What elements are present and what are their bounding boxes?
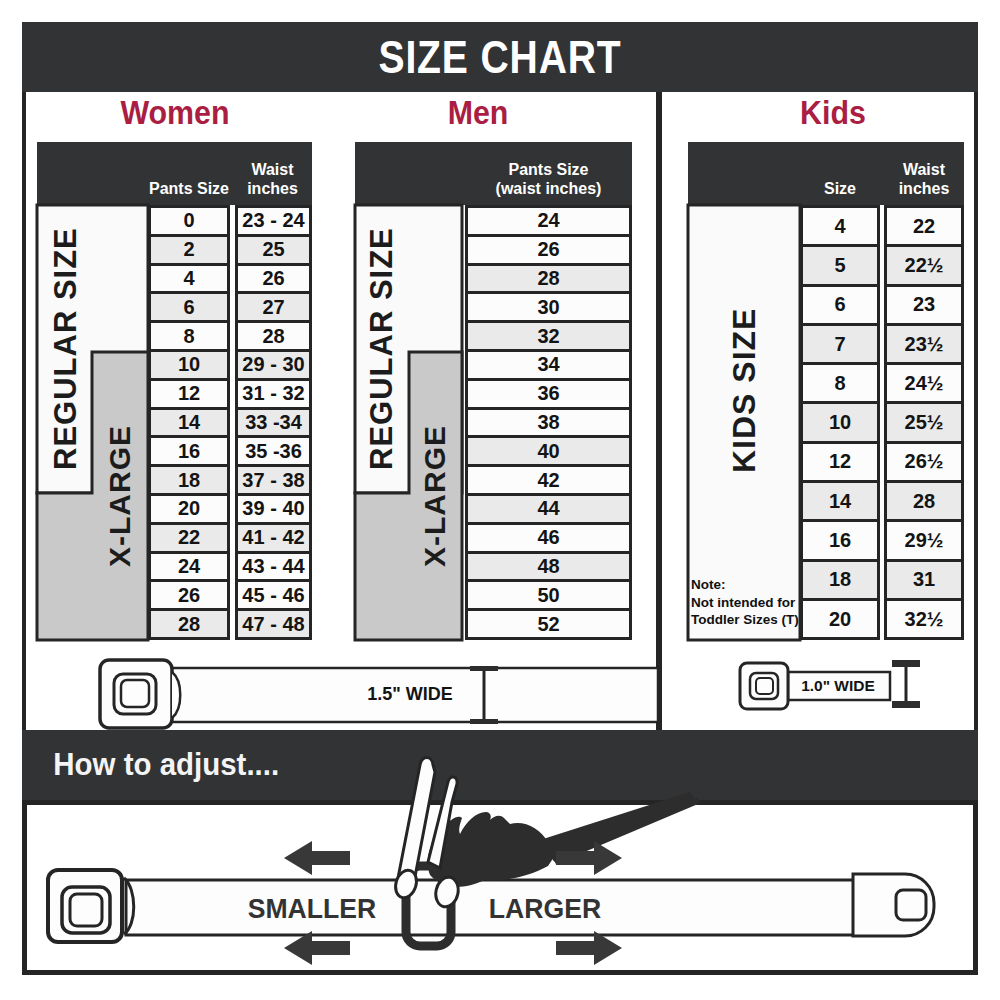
table-row: 48 <box>465 551 632 583</box>
table-row: 522½ <box>800 244 964 286</box>
table-cell-waist: 45 - 46 <box>235 579 312 611</box>
table-cell-size: 24 <box>148 551 230 583</box>
table-row: 28 <box>465 263 632 295</box>
table-row: 828 <box>148 320 312 352</box>
table-row: 1831 <box>800 559 964 601</box>
table-cell-waist: 23½ <box>884 323 964 365</box>
table-row: 2241 - 42 <box>148 522 312 554</box>
table-cell-size: 22 <box>148 522 230 554</box>
kids-note: Note: Not intended for Toddler Sizes (T) <box>691 576 803 629</box>
how-to-adjust-heading: How to adjust.... <box>22 747 279 783</box>
table-row: 1428 <box>800 480 964 522</box>
men-table-header: Pants Size (waist inches) <box>355 142 632 205</box>
size-chart-banner: SIZE CHART <box>22 22 978 92</box>
table-row: 32 <box>465 320 632 352</box>
table-row: 225 <box>148 234 312 266</box>
table-cell-size: 42 <box>465 464 632 496</box>
adult-belt-width-label: 1.5" WIDE <box>340 684 480 705</box>
table-cell-waist: 28 <box>884 480 964 522</box>
table-cell-waist: 31 - 32 <box>235 378 312 410</box>
table-cell-size: 28 <box>465 263 632 295</box>
table-cell-size: 52 <box>465 608 632 640</box>
size-chart-graphic: SIZE CHART Women Men Kids <box>0 0 1000 1000</box>
kids-note-line: Toddler Sizes (T) <box>691 611 803 629</box>
table-cell-waist: 41 - 42 <box>235 522 312 554</box>
table-row: 36 <box>465 378 632 410</box>
page-title: SIZE CHART <box>378 30 621 84</box>
table-cell-size: 26 <box>465 234 632 266</box>
kids-size-column-header: Size <box>800 180 880 199</box>
women-waist-column-header: Waist inches <box>234 161 311 199</box>
table-cell-size: 8 <box>800 362 880 404</box>
table-row: 38 <box>465 407 632 439</box>
table-cell-size: 48 <box>465 551 632 583</box>
table-row: 2645 - 46 <box>148 579 312 611</box>
table-cell-size: 5 <box>800 244 880 286</box>
men-regular-size-label: REGULAR SIZE <box>355 205 409 493</box>
table-cell-size: 32 <box>465 320 632 352</box>
table-cell-waist: 29 - 30 <box>235 349 312 381</box>
table-cell-waist: 23 <box>884 284 964 326</box>
table-cell-size: 28 <box>148 608 230 640</box>
table-cell-waist: 31 <box>884 559 964 601</box>
table-cell-waist: 22½ <box>884 244 964 286</box>
table-cell-size: 0 <box>148 205 230 237</box>
table-cell-size: 4 <box>800 205 880 247</box>
table-cell-size: 36 <box>465 378 632 410</box>
table-row: 426 <box>148 263 312 295</box>
table-cell-size: 16 <box>148 435 230 467</box>
table-cell-waist: 35 -36 <box>235 435 312 467</box>
table-row: 627 <box>148 291 312 323</box>
table-cell-size: 44 <box>465 493 632 525</box>
table-cell-size: 46 <box>465 522 632 554</box>
kids-note-line: Not intended for <box>691 594 803 612</box>
table-row: 623 <box>800 284 964 326</box>
table-row: 52 <box>465 608 632 640</box>
table-row: 824½ <box>800 362 964 404</box>
table-cell-size: 24 <box>465 205 632 237</box>
table-cell-size: 12 <box>148 378 230 410</box>
table-cell-waist: 37 - 38 <box>235 464 312 496</box>
table-row: 50 <box>465 579 632 611</box>
table-cell-size: 50 <box>465 579 632 611</box>
table-cell-size: 14 <box>800 480 880 522</box>
table-row: 2847 - 48 <box>148 608 312 640</box>
larger-label: LARGER <box>469 893 621 925</box>
table-row: 422 <box>800 205 964 247</box>
table-row: 44 <box>465 493 632 525</box>
kids-table-header: Size Waist inches <box>688 142 964 205</box>
table-cell-waist: 43 - 44 <box>235 551 312 583</box>
women-size-column-header: Pants Size <box>148 180 230 199</box>
table-row: 42 <box>465 464 632 496</box>
adjust-illustration-panel <box>22 800 978 975</box>
table-row: 2443 - 44 <box>148 551 312 583</box>
table-cell-size: 8 <box>148 320 230 352</box>
table-row: 40 <box>465 435 632 467</box>
kids-belt-width-label: 1.0" WIDE <box>798 677 878 695</box>
table-cell-size: 18 <box>148 464 230 496</box>
table-cell-size: 18 <box>800 559 880 601</box>
table-row: 26 <box>465 234 632 266</box>
table-cell-size: 38 <box>465 407 632 439</box>
table-row: 34 <box>465 349 632 381</box>
women-table-header: Pants Size Waist inches <box>37 142 312 205</box>
table-row: 46 <box>465 522 632 554</box>
women-heading: Women <box>83 94 267 132</box>
table-row: 1226½ <box>800 441 964 483</box>
table-cell-size: 20 <box>800 598 880 640</box>
men-kids-divider <box>656 92 662 730</box>
table-cell-size: 4 <box>148 263 230 295</box>
table-cell-size: 2 <box>148 234 230 266</box>
table-cell-waist: 24½ <box>884 362 964 404</box>
table-row: 1029 - 30 <box>148 349 312 381</box>
table-row: 30 <box>465 291 632 323</box>
kids-waist-column-header: Waist inches <box>884 161 964 199</box>
smaller-label: SMALLER <box>236 893 388 925</box>
men-xlarge-label: X-LARGE <box>408 352 462 640</box>
table-cell-size: 34 <box>465 349 632 381</box>
table-row: 1837 - 38 <box>148 464 312 496</box>
table-row: 2032½ <box>800 598 964 640</box>
kids-size-table: 422522½623723½824½1025½1226½14281629½183… <box>800 205 964 640</box>
table-cell-waist: 33 -34 <box>235 407 312 439</box>
kids-size-label: KIDS SIZE <box>688 225 800 555</box>
kids-heading: Kids <box>741 94 925 132</box>
table-cell-size: 20 <box>148 493 230 525</box>
table-cell-waist: 32½ <box>884 598 964 640</box>
men-heading: Men <box>386 94 570 132</box>
women-regular-size-label: REGULAR SIZE <box>37 205 95 493</box>
table-cell-waist: 47 - 48 <box>235 608 312 640</box>
table-cell-waist: 26 <box>235 263 312 295</box>
table-row: 1231 - 32 <box>148 378 312 410</box>
table-cell-size: 12 <box>800 441 880 483</box>
table-cell-size: 40 <box>465 435 632 467</box>
table-cell-size: 6 <box>148 291 230 323</box>
table-row: 1025½ <box>800 401 964 443</box>
table-cell-waist: 28 <box>235 320 312 352</box>
table-row: 723½ <box>800 323 964 365</box>
table-row: 1433 -34 <box>148 407 312 439</box>
table-cell-waist: 26½ <box>884 441 964 483</box>
table-cell-waist: 29½ <box>884 519 964 561</box>
men-size-table: 242628303234363840424446485052 <box>465 205 632 640</box>
kids-note-line: Note: <box>691 576 803 594</box>
table-cell-size: 6 <box>800 284 880 326</box>
table-cell-size: 10 <box>148 349 230 381</box>
table-cell-size: 7 <box>800 323 880 365</box>
how-to-adjust-banner: How to adjust.... <box>22 730 978 800</box>
table-row: 2039 - 40 <box>148 493 312 525</box>
table-row: 1629½ <box>800 519 964 561</box>
table-cell-size: 14 <box>148 407 230 439</box>
table-cell-waist: 22 <box>884 205 964 247</box>
table-cell-size: 30 <box>465 291 632 323</box>
men-size-column-header: Pants Size (waist inches) <box>465 161 632 199</box>
table-cell-waist: 23 - 24 <box>235 205 312 237</box>
table-row: 24 <box>465 205 632 237</box>
table-cell-waist: 25½ <box>884 401 964 443</box>
table-cell-waist: 39 - 40 <box>235 493 312 525</box>
women-xlarge-label: X-LARGE <box>92 352 148 640</box>
table-row: 1635 -36 <box>148 435 312 467</box>
table-cell-size: 16 <box>800 519 880 561</box>
table-cell-waist: 27 <box>235 291 312 323</box>
women-size-table: 023 - 242254266278281029 - 301231 - 3214… <box>148 205 312 640</box>
table-row: 023 - 24 <box>148 205 312 237</box>
table-cell-waist: 25 <box>235 234 312 266</box>
table-cell-size: 10 <box>800 401 880 443</box>
table-cell-size: 26 <box>148 579 230 611</box>
